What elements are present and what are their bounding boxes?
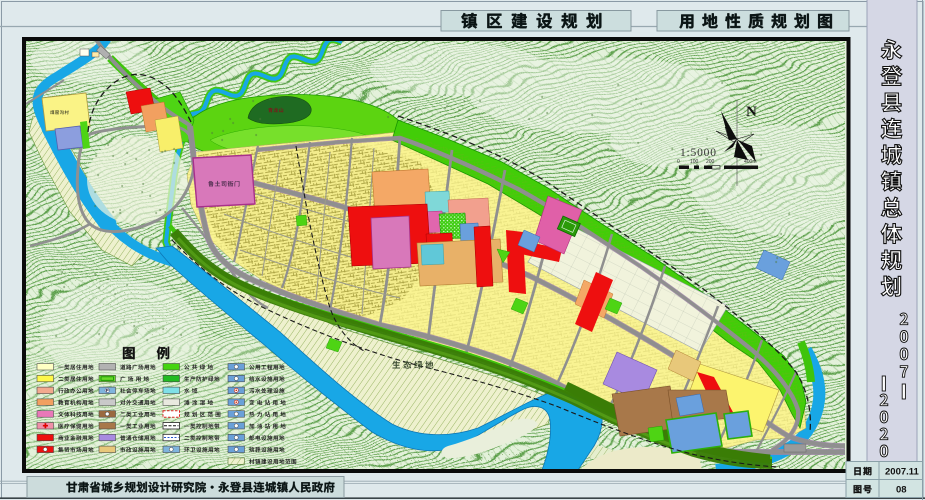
- svg-text:200: 200: [706, 159, 715, 165]
- svg-text:1:5000: 1:5000: [680, 147, 717, 159]
- svg-text:2007.11: 2007.11: [885, 467, 920, 478]
- svg-text:08: 08: [896, 485, 907, 496]
- svg-text:N: N: [746, 104, 757, 120]
- svg-text:400m: 400m: [744, 159, 757, 165]
- svg-text:0: 0: [677, 159, 680, 165]
- svg-text:P: P: [106, 388, 109, 393]
